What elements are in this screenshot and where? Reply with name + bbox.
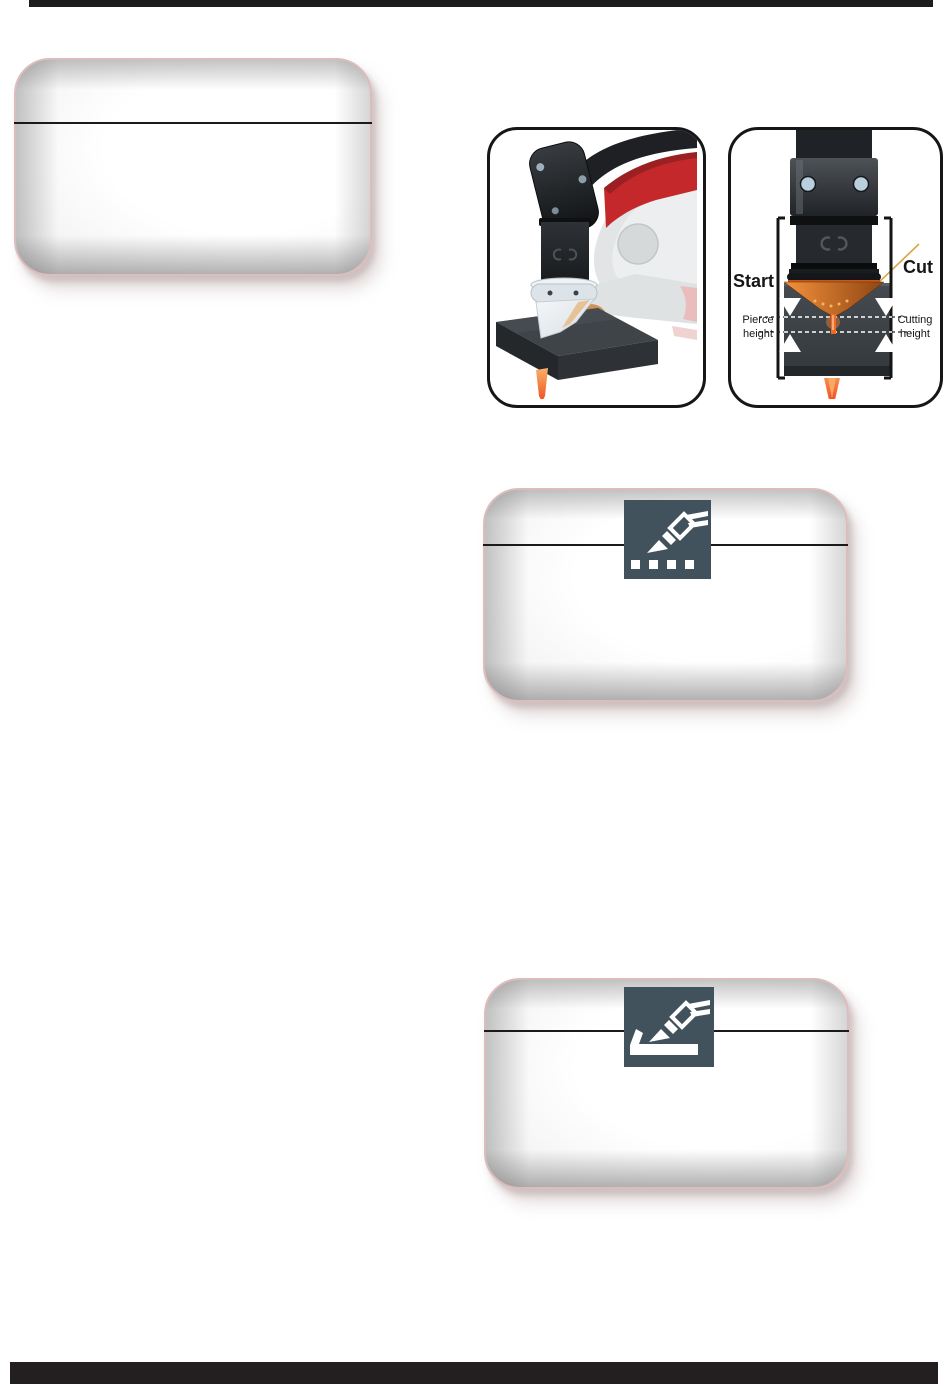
torch-edge-start-icon — [624, 987, 714, 1067]
figure-cut-heights: Start Cut Pierce height Cutting height — [728, 127, 943, 408]
flame-under-plate — [824, 378, 840, 399]
note-panel-top-left — [14, 58, 372, 276]
note-panel-edge-start — [484, 978, 849, 1189]
screw-left — [801, 177, 816, 192]
figure-torch-on-plate — [487, 127, 706, 408]
top-rule — [29, 0, 933, 7]
start-label: Start — [733, 271, 774, 292]
machine-torch-barrel — [789, 130, 879, 275]
panel-divider-line — [14, 122, 372, 124]
bottom-rule — [10, 1362, 938, 1384]
cutting-height-label: Cutting height — [890, 313, 940, 342]
screw-right — [854, 177, 869, 192]
torch-on-plate-illustration — [490, 130, 697, 399]
manual-page: Start Cut Pierce height Cutting height — [0, 0, 950, 1384]
cut-label: Cut — [903, 257, 933, 278]
torch-dotted-line-cut-icon — [624, 500, 711, 579]
pierce-height-label: Pierce height — [731, 313, 785, 342]
torch-glyph — [647, 511, 708, 553]
torch-glyph — [649, 1000, 710, 1042]
note-panel-dotted-cut — [483, 488, 848, 702]
dotted-line-glyph — [631, 560, 694, 569]
flame-under-plate — [536, 368, 548, 399]
torch-barrel — [539, 218, 591, 288]
